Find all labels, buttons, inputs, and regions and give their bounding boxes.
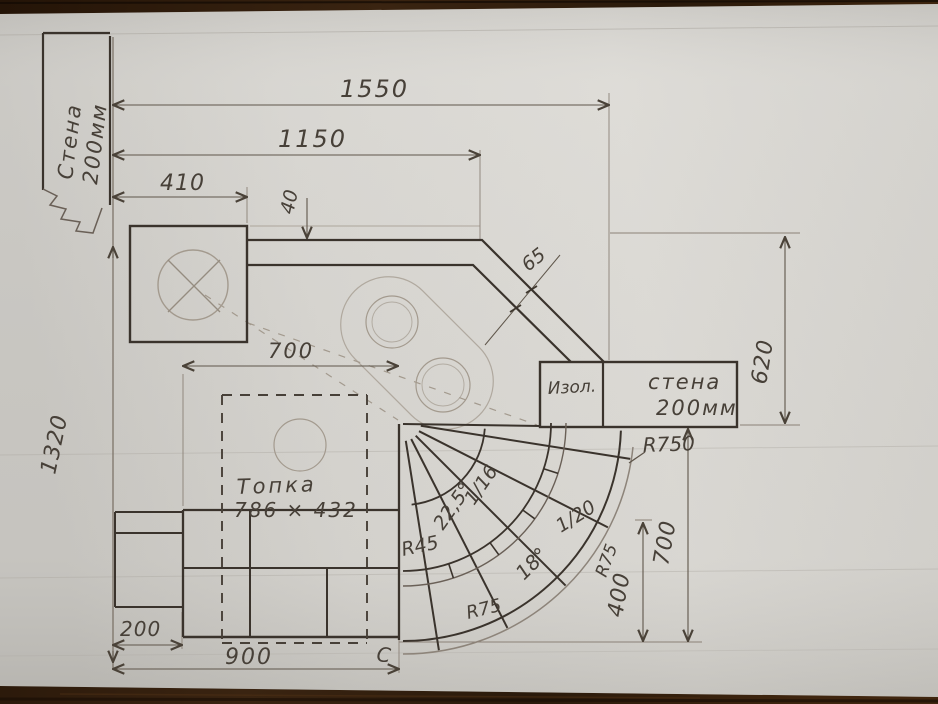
dim-stove-width: 410 [160, 171, 205, 196]
blueprint-photo: Стена 200мм 1550 1150 410 40 65 620 1320… [0, 0, 938, 704]
firebox-label-line1: Топка [236, 472, 317, 499]
wall-block-label-line1: стена [648, 370, 721, 394]
radius-label-outer: R750 [642, 431, 695, 457]
photo-of-hand-drawn-plan: Стена 200мм 1550 1150 410 40 65 620 1320… [0, 0, 938, 704]
firebox-label-line2: 786 × 432 [234, 498, 358, 522]
dim-duct-width: 1150 [278, 125, 347, 153]
dim-base-width: 900 [225, 645, 273, 670]
paper-sheet [0, 4, 938, 697]
dim-hearth-width: 700 [268, 339, 314, 363]
dim-total-width: 1550 [340, 75, 409, 103]
wall-block-label-line2: 200мм [656, 396, 738, 420]
insulation-label: Изол. [547, 376, 596, 399]
dim-plinth-col: 200 [120, 617, 161, 641]
section-mark: С [375, 642, 391, 667]
